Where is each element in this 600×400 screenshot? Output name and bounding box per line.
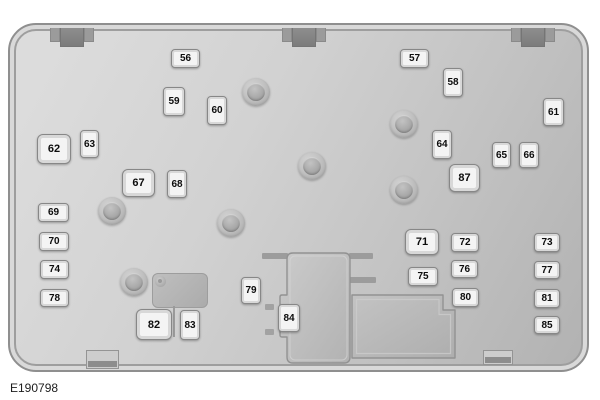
fuse-label-80: 80: [452, 288, 479, 307]
fuse-label-76: 76: [451, 260, 478, 278]
fuse-label-85: 85: [534, 316, 560, 334]
mounting-tab-bottom-left: [86, 350, 119, 369]
connector-mark: [265, 304, 274, 310]
bolt-icon: [242, 78, 270, 106]
bolt-icon: [390, 176, 418, 204]
fuse-label-74: 74: [40, 260, 69, 279]
bolt-head-icon: [103, 202, 121, 220]
tab-center: [60, 28, 84, 47]
fuse-label-69: 69: [38, 203, 69, 222]
fuse-label-67: 67: [122, 169, 155, 197]
fuse-label-81: 81: [534, 289, 560, 308]
tab-center: [521, 28, 545, 47]
fuse-label-73: 73: [534, 233, 560, 252]
bolt-head-icon: [125, 273, 143, 291]
fuse-label-83: 83: [180, 310, 200, 340]
fuse-label-65: 65: [492, 142, 511, 168]
fuse-label-64: 64: [432, 130, 452, 159]
fuse-label-60: 60: [207, 96, 227, 125]
bolt-head-icon: [247, 83, 265, 101]
bolt-icon: [298, 152, 326, 180]
fuse-label-66: 66: [519, 142, 539, 168]
bolt-head-icon: [222, 214, 240, 232]
bolt-icon: [390, 110, 418, 138]
fuse-box-diagram: 56 57 58 59 60 61 62 63 64 65 66 67 68 8…: [0, 0, 600, 400]
fuse-label-79: 79: [241, 277, 261, 304]
fuse-label-82: 82: [136, 309, 172, 340]
fuse-label-71: 71: [405, 229, 439, 255]
fuse-label-77: 77: [534, 261, 560, 279]
mounting-tab-top-right: [511, 28, 555, 47]
fuse-label-62: 62: [37, 134, 71, 164]
fuse-label-87: 87: [449, 164, 480, 192]
pin-dot-icon: [158, 279, 162, 283]
connector-tab-left: [262, 253, 288, 259]
relay-pin-icon: [155, 276, 166, 287]
connector-mark: [265, 329, 274, 335]
fuse-label-78: 78: [40, 289, 69, 307]
tab-center: [292, 28, 316, 47]
bolt-head-icon: [395, 181, 413, 199]
bolt-icon: [98, 197, 126, 225]
tab-strip: [485, 357, 511, 363]
tab-strip: [88, 361, 117, 367]
mounting-tab-bottom-right: [483, 350, 513, 365]
fuse-label-56: 56: [171, 49, 200, 68]
tab-wing: [282, 28, 292, 42]
fuse-label-61: 61: [543, 98, 564, 126]
center-connector-assembly: [240, 245, 470, 370]
tab-wing: [316, 28, 326, 42]
mounting-tab-top-left: [50, 28, 94, 47]
relay-stem-line: [173, 306, 175, 337]
fuse-label-70: 70: [39, 232, 69, 251]
bolt-icon: [217, 209, 245, 237]
mounting-tab-top-middle: [282, 28, 326, 47]
fuse-label-59: 59: [163, 87, 185, 116]
tab-wing: [84, 28, 94, 42]
bolt-head-icon: [395, 115, 413, 133]
fuse-label-63: 63: [80, 130, 99, 158]
connector-tab-right-top: [349, 253, 373, 259]
relay-block-small: [152, 273, 208, 308]
fuse-label-68: 68: [167, 170, 187, 198]
fuse-label-57: 57: [400, 49, 429, 68]
tab-wing: [511, 28, 521, 42]
bolt-icon: [120, 268, 148, 296]
fuse-label-58: 58: [443, 68, 463, 97]
bolt-head-icon: [303, 157, 321, 175]
fuse-label-75: 75: [408, 267, 438, 286]
figure-code: E190798: [10, 381, 58, 395]
fuse-label-84: 84: [278, 304, 300, 332]
tab-wing: [545, 28, 555, 42]
connector-tab-right-mid: [349, 277, 376, 283]
fuse-label-72: 72: [451, 233, 479, 252]
tab-wing: [50, 28, 60, 42]
